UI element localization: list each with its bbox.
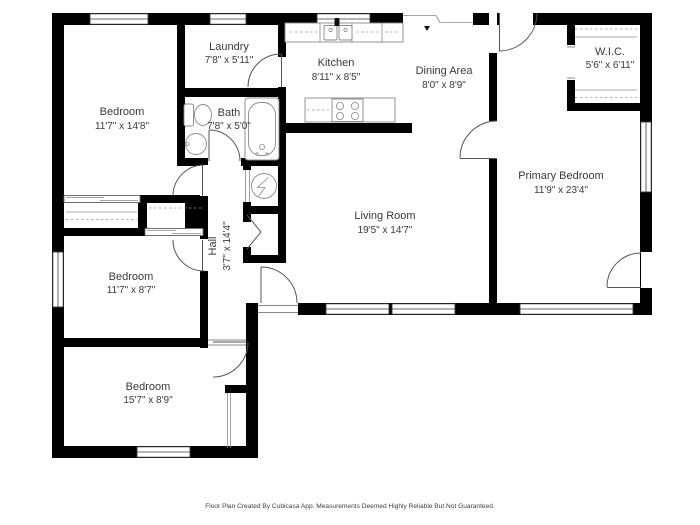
svg-text:8'11" x 8'5": 8'11" x 8'5" (312, 72, 361, 83)
svg-text:7'8" x 5'0": 7'8" x 5'0" (207, 121, 251, 132)
room-label-bedroom-top-left: Bedroom 11'7" x 14'8" (95, 106, 150, 132)
svg-text:Bedroom: Bedroom (126, 381, 171, 393)
faucet-icon (335, 18, 340, 26)
svg-text:11'7" x 14'8": 11'7" x 14'8" (95, 121, 150, 132)
room-labels: Bedroom 11'7" x 14'8" Laundry 7'8" x 5'1… (95, 41, 635, 406)
svg-text:3'7" x 14'4": 3'7" x 14'4" (222, 221, 233, 271)
svg-text:11'9" x 23'4": 11'9" x 23'4" (534, 185, 589, 196)
svg-text:15'7" x 8'9": 15'7" x 8'9" (123, 395, 173, 406)
svg-text:Bedroom: Bedroom (109, 271, 154, 283)
svg-text:Kitchen: Kitchen (318, 57, 355, 69)
closet-slider (228, 393, 231, 448)
room-label-kitchen: Kitchen 8'11" x 8'5" (312, 57, 361, 83)
floor-plan-page: Bedroom 11'7" x 14'8" Laundry 7'8" x 5'1… (0, 0, 700, 525)
room-label-wic: W.I.C. 5'6" x 6'11" (586, 46, 635, 71)
room-label-bedroom-middle: Bedroom 11'7" x 8'7" (107, 271, 156, 296)
room-label-primary-bedroom: Primary Bedroom 11'9" x 23'4" (518, 170, 604, 196)
svg-text:11'7" x 8'7": 11'7" x 8'7" (107, 285, 156, 296)
svg-text:19'5" x 14'7": 19'5" x 14'7" (358, 225, 413, 236)
svg-text:Bath: Bath (218, 107, 241, 119)
room-label-living-room: Living Room 19'5" x 14'7" (354, 210, 415, 236)
svg-text:Dining Area: Dining Area (416, 65, 474, 77)
utility-door (246, 170, 250, 202)
svg-text:5'6" x 6'11": 5'6" x 6'11" (586, 60, 635, 71)
water-heater-icon (252, 174, 277, 199)
svg-text:7'8" x 5'11": 7'8" x 5'11" (205, 55, 254, 66)
kitchen-stove-counter (305, 98, 395, 122)
room-label-hall: Hall 3'7" x 14'4" (207, 221, 233, 271)
bath-sink-icon (186, 134, 207, 155)
svg-text:Living Room: Living Room (354, 210, 415, 222)
svg-text:W.I.C.: W.I.C. (595, 46, 625, 58)
svg-text:Bedroom: Bedroom (100, 106, 145, 118)
footer-disclaimer: Floor Plan Created By Cubicasa App. Meas… (205, 503, 495, 510)
svg-text:Primary Bedroom: Primary Bedroom (518, 170, 604, 182)
room-label-dining-area: Dining Area 8'0" x 8'9" (416, 65, 474, 91)
room-label-bedroom-bottom: Bedroom 15'7" x 8'9" (123, 381, 173, 406)
svg-text:Hall: Hall (207, 237, 219, 256)
svg-text:Laundry: Laundry (209, 41, 249, 53)
floor-plan-image: Bedroom 11'7" x 14'8" Laundry 7'8" x 5'1… (0, 0, 700, 525)
svg-text:8'0" x 8'9": 8'0" x 8'9" (422, 80, 466, 91)
room-label-laundry: Laundry 7'8" x 5'11" (205, 41, 254, 66)
dining-opening (403, 13, 473, 31)
